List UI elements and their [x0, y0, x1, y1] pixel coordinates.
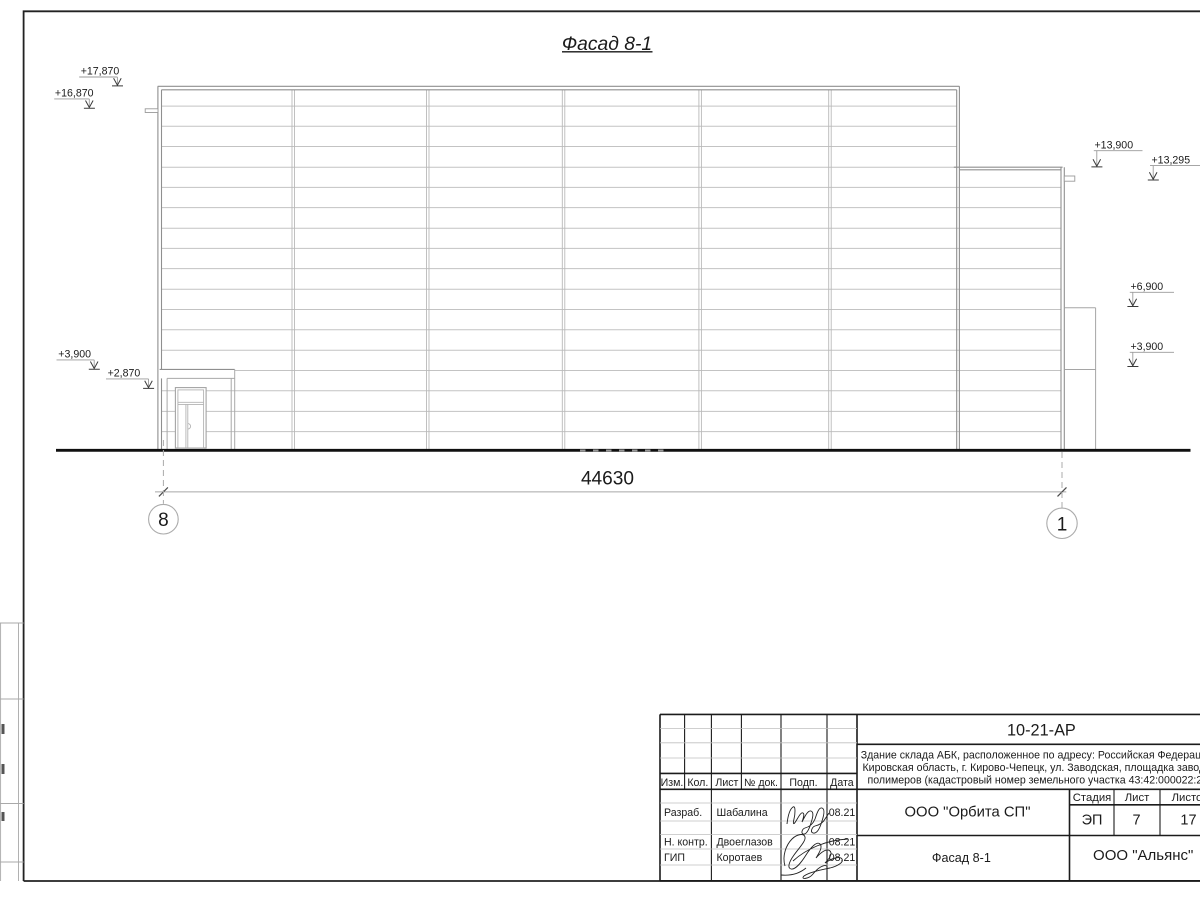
svg-text:Коротаев: Коротаев: [717, 852, 763, 864]
svg-text:7: 7: [1132, 813, 1140, 829]
svg-text:+13,900: +13,900: [1095, 139, 1134, 151]
svg-text:1: 1: [1057, 515, 1068, 536]
svg-text:Здание склада АБК, расположенн: Здание склада АБК, расположенное по адре…: [861, 750, 1200, 762]
svg-text:08.21: 08.21: [829, 836, 856, 848]
svg-text:Стадия: Стадия: [1073, 792, 1112, 804]
svg-text:Шабалина: Шабалина: [717, 807, 768, 819]
svg-text:17: 17: [1180, 813, 1196, 829]
svg-text:ЭП: ЭП: [1082, 813, 1103, 829]
svg-text:+2,870: +2,870: [108, 367, 141, 379]
svg-text:Лист: Лист: [1125, 792, 1150, 804]
svg-text:Фасад 8-1: Фасад 8-1: [932, 851, 991, 865]
svg-text:Изм.: Изм.: [661, 777, 684, 789]
svg-text:Подп.: Подп.: [789, 777, 817, 789]
svg-text:+13,295: +13,295: [1152, 154, 1191, 166]
svg-text:08.21: 08.21: [829, 807, 856, 819]
svg-text:Дата: Дата: [830, 777, 854, 789]
svg-text:№ док.: № док.: [744, 777, 778, 789]
svg-text:Листов: Листов: [1172, 792, 1200, 804]
svg-text:Кол.: Кол.: [687, 777, 708, 789]
svg-text:Двоеглазов: Двоеглазов: [717, 836, 774, 848]
svg-text:44630: 44630: [581, 468, 634, 489]
svg-text:Лист: Лист: [715, 777, 738, 789]
svg-text:Разраб.: Разраб.: [664, 807, 702, 819]
svg-text:+16,870: +16,870: [55, 87, 94, 99]
svg-text:+17,870: +17,870: [81, 66, 120, 78]
svg-text:ГИП: ГИП: [664, 852, 685, 864]
svg-text:полимеров (кадастровый номер з: полимеров (кадастровый номер земельного …: [868, 775, 1200, 787]
svg-text:10-21-АР: 10-21-АР: [1007, 722, 1076, 740]
svg-text:+3,900: +3,900: [58, 348, 91, 360]
svg-text:Н. контр.: Н. контр.: [664, 836, 708, 848]
svg-text:8: 8: [158, 510, 169, 531]
svg-text:Кировская область, г. Кирово-Ч: Кировская область, г. Кирово-Чепецк, ул.…: [863, 762, 1200, 774]
svg-text:ООО "Орбита СП": ООО "Орбита СП": [905, 804, 1031, 820]
svg-text:+6,900: +6,900: [1131, 281, 1164, 293]
svg-text:ООО "Альянс": ООО "Альянс": [1093, 847, 1193, 864]
svg-text:+3,900: +3,900: [1131, 341, 1164, 353]
